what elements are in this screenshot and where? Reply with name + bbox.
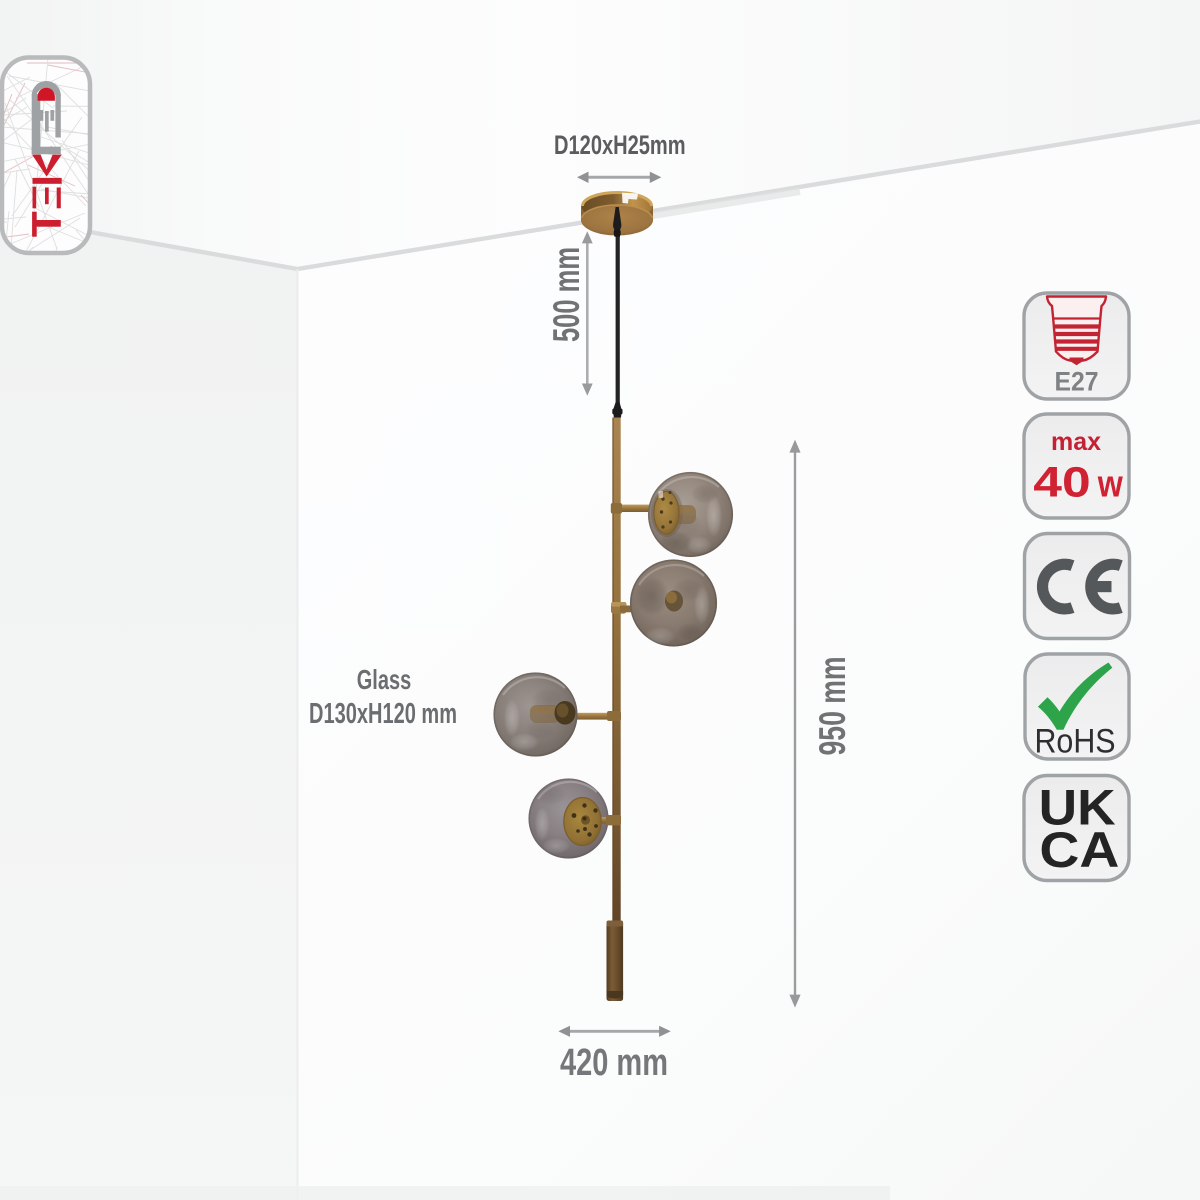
svg-text:40: 40 bbox=[1033, 460, 1090, 507]
svg-text:Glass: Glass bbox=[357, 664, 412, 695]
svg-text:w: w bbox=[1097, 464, 1123, 506]
svg-text:E27: E27 bbox=[1055, 367, 1099, 397]
svg-text:420 mm: 420 mm bbox=[560, 1042, 668, 1084]
svg-text:D120xH25mm: D120xH25mm bbox=[554, 130, 686, 160]
svg-text:950 mm: 950 mm bbox=[812, 657, 853, 756]
svg-text:D130xH120 mm: D130xH120 mm bbox=[309, 698, 457, 730]
svg-text:RoHS: RoHS bbox=[1035, 723, 1116, 761]
svg-text:max: max bbox=[1051, 428, 1101, 456]
svg-text:500 mm: 500 mm bbox=[546, 247, 587, 342]
svg-text:CA: CA bbox=[1039, 822, 1119, 878]
